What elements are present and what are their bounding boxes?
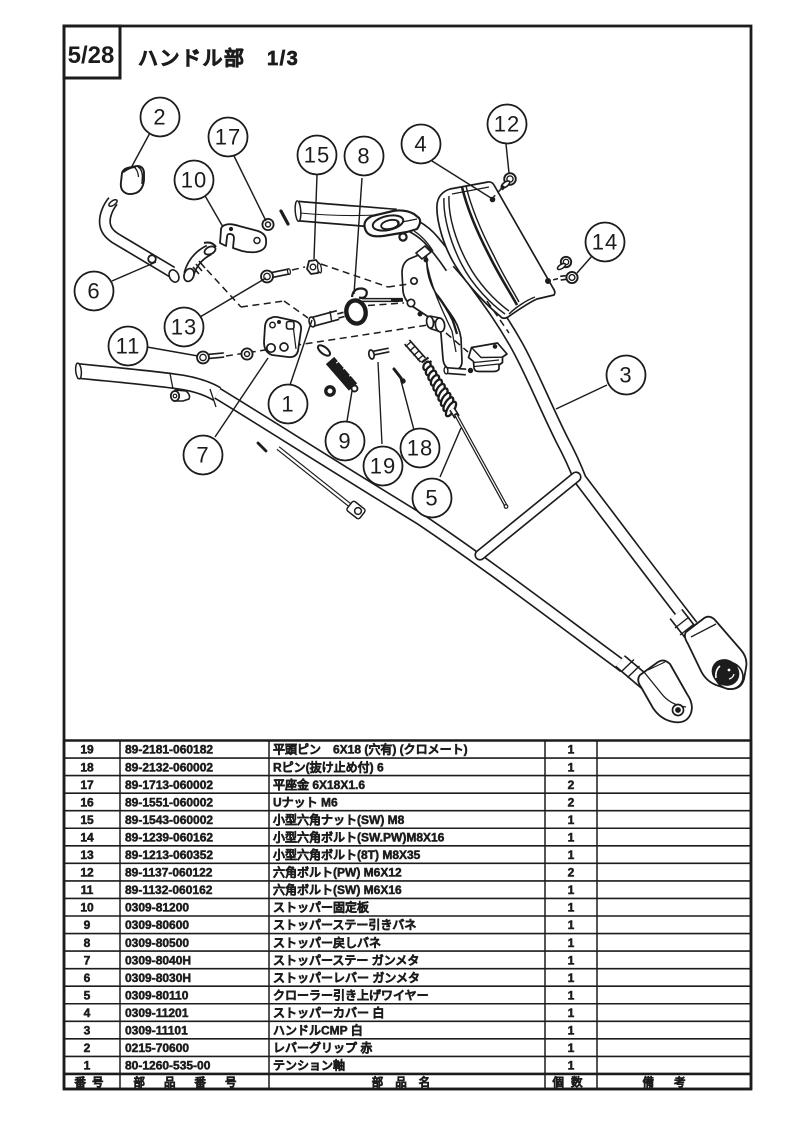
svg-text:89-1551-060002: 89-1551-060002 [125, 795, 213, 809]
svg-text:11: 11 [116, 334, 141, 359]
svg-text:6: 6 [84, 971, 91, 985]
svg-text:89-1239-060162: 89-1239-060162 [125, 830, 213, 844]
svg-text:1: 1 [568, 883, 575, 897]
svg-text:0215-70600: 0215-70600 [125, 1041, 189, 1055]
svg-text:1: 1 [568, 848, 575, 862]
svg-text:Uナット M6: Uナット M6 [273, 795, 338, 809]
svg-text:0309-11101: 0309-11101 [125, 1024, 188, 1038]
svg-text:14: 14 [592, 230, 618, 255]
svg-text:16: 16 [80, 795, 94, 809]
svg-text:0309-8040H: 0309-8040H [125, 953, 191, 967]
svg-text:1: 1 [568, 971, 575, 985]
svg-text:4: 4 [84, 1006, 91, 1020]
svg-text:5: 5 [84, 988, 91, 1002]
svg-text:15: 15 [80, 813, 94, 827]
svg-text:0309-8030H: 0309-8030H [125, 971, 191, 985]
svg-text:1: 1 [84, 1059, 91, 1073]
svg-text:89-2132-060002: 89-2132-060002 [125, 760, 213, 774]
svg-text:3: 3 [84, 1024, 91, 1038]
svg-text:部品名: 部品名 [372, 1075, 443, 1089]
svg-text:89-1543-060002: 89-1543-060002 [125, 813, 213, 827]
svg-text:0309-80110: 0309-80110 [125, 988, 189, 1002]
svg-text:89-1137-060122: 89-1137-060122 [125, 866, 213, 880]
svg-text:1: 1 [568, 988, 575, 1002]
svg-text:小型六角ボルト(8T) M8X35: 小型六角ボルト(8T) M8X35 [273, 847, 421, 862]
svg-text:個数: 個数 [552, 1075, 590, 1089]
svg-text:89-1213-060352: 89-1213-060352 [125, 848, 213, 862]
svg-text:19: 19 [80, 743, 94, 757]
svg-text:19: 19 [370, 454, 396, 479]
svg-text:10: 10 [181, 168, 207, 193]
svg-text:3: 3 [619, 363, 632, 388]
svg-text:番号: 番号 [74, 1075, 110, 1089]
svg-text:ストッパー戻しバネ: ストッパー戻しバネ [273, 935, 381, 950]
svg-text:89-1713-060002: 89-1713-060002 [125, 778, 213, 792]
svg-text:7: 7 [84, 953, 91, 967]
svg-text:17: 17 [80, 778, 94, 792]
svg-text:18: 18 [80, 760, 94, 774]
svg-text:2: 2 [568, 778, 575, 792]
svg-text:ハンドル部 1/3: ハンドル部 1/3 [138, 46, 299, 70]
svg-text:2: 2 [153, 105, 166, 130]
svg-text:ハンドルCMP 白: ハンドルCMP 白 [273, 1023, 363, 1038]
svg-text:13: 13 [171, 315, 197, 340]
svg-text:7: 7 [196, 443, 209, 468]
svg-text:平座金 6X18X1.6: 平座金 6X18X1.6 [273, 777, 365, 792]
svg-text:備考: 備考 [643, 1075, 706, 1089]
svg-text:ストッパーステー引きバネ: ストッパーステー引きバネ [273, 918, 416, 932]
svg-text:4: 4 [414, 132, 427, 157]
svg-text:小型六角ボルト(SW.PW)M8X16: 小型六角ボルト(SW.PW)M8X16 [273, 829, 445, 844]
svg-text:ストッパー固定板: ストッパー固定板 [273, 900, 370, 915]
svg-text:0309-80500: 0309-80500 [125, 936, 189, 950]
svg-text:1: 1 [568, 936, 575, 950]
svg-text:0309-80600: 0309-80600 [125, 918, 189, 932]
svg-text:12: 12 [494, 112, 520, 137]
svg-text:5: 5 [425, 486, 438, 511]
svg-text:平頭ピン 6X18 (穴有) (クロメート): 平頭ピン 6X18 (穴有) (クロメート) [273, 742, 468, 757]
svg-text:1: 1 [568, 760, 575, 774]
svg-text:14: 14 [80, 830, 94, 844]
svg-text:1: 1 [568, 1006, 575, 1020]
svg-text:Rピン(抜け止め付) 6: Rピン(抜け止め付) 6 [273, 759, 384, 774]
svg-text:ストッパーステー ガンメタ: ストッパーステー ガンメタ [273, 952, 419, 967]
svg-text:8: 8 [357, 144, 370, 169]
svg-text:9: 9 [84, 918, 91, 932]
svg-text:レバーグリップ 赤: レバーグリップ 赤 [273, 1040, 372, 1055]
svg-text:10: 10 [80, 901, 94, 915]
svg-text:17: 17 [215, 125, 241, 150]
svg-text:13: 13 [80, 848, 94, 862]
svg-text:18: 18 [407, 436, 433, 461]
svg-text:2: 2 [84, 1041, 91, 1055]
svg-text:12: 12 [80, 866, 94, 880]
svg-text:89-1132-060162: 89-1132-060162 [125, 883, 213, 897]
svg-text:15: 15 [304, 143, 330, 168]
svg-text:部品番号: 部品番号 [134, 1075, 256, 1089]
svg-text:1: 1 [568, 743, 575, 757]
svg-text:クローラー引き上げワイヤー: クローラー引き上げワイヤー [273, 987, 429, 1002]
svg-text:2: 2 [568, 795, 575, 809]
svg-text:80-1260-535-00: 80-1260-535-00 [125, 1059, 211, 1073]
svg-text:11: 11 [81, 883, 94, 897]
svg-text:ストッパーレバー ガンメタ: ストッパーレバー ガンメタ [273, 970, 420, 985]
svg-text:1: 1 [281, 392, 294, 417]
svg-text:5/28: 5/28 [68, 42, 115, 69]
svg-text:9: 9 [338, 429, 351, 454]
svg-text:小型六角ナット(SW) M8: 小型六角ナット(SW) M8 [273, 812, 405, 827]
svg-text:ストッパーカバー 白: ストッパーカバー 白 [273, 1005, 384, 1020]
svg-text:6: 6 [87, 279, 100, 304]
svg-text:1: 1 [568, 813, 575, 827]
svg-text:六角ボルト(SW) M6X16: 六角ボルト(SW) M6X16 [273, 882, 402, 897]
svg-text:0309-81200: 0309-81200 [125, 901, 189, 915]
svg-text:8: 8 [84, 936, 91, 950]
svg-text:0309-11201: 0309-11201 [125, 1006, 189, 1020]
svg-text:1: 1 [568, 918, 575, 932]
svg-text:1: 1 [568, 1059, 575, 1073]
svg-text:六角ボルト(PW) M6X12: 六角ボルト(PW) M6X12 [273, 865, 402, 880]
svg-text:1: 1 [568, 830, 575, 844]
svg-text:89-2181-060182: 89-2181-060182 [125, 743, 213, 757]
svg-text:1: 1 [568, 1024, 575, 1038]
svg-text:1: 1 [568, 953, 575, 967]
svg-text:2: 2 [568, 866, 575, 880]
svg-text:1: 1 [568, 901, 575, 915]
svg-text:テンション軸: テンション軸 [273, 1058, 345, 1073]
svg-text:1: 1 [568, 1041, 575, 1055]
